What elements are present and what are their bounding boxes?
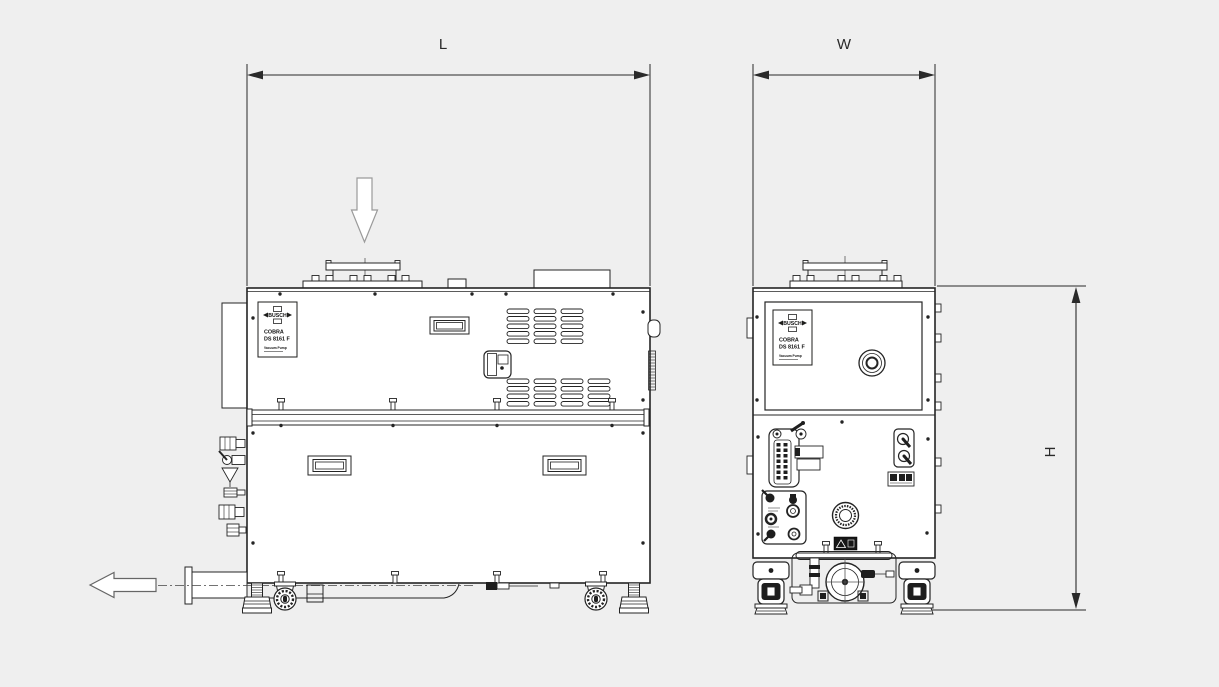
arrowhead-left-icon: [247, 71, 263, 80]
dimension-length: L: [247, 36, 650, 286]
flange-bolt: [402, 276, 409, 282]
caster-wheel: [585, 582, 607, 610]
length-label: L: [439, 36, 447, 53]
caster-wheel: [899, 562, 935, 614]
exhaust-pipe: [192, 572, 247, 598]
upper-handle: [430, 317, 469, 334]
side-view: [90, 178, 660, 613]
caster-wheel: [274, 582, 296, 610]
arrowhead-left-icon: [753, 71, 769, 80]
type-label-sticker: [888, 472, 914, 486]
arrowhead-right-icon: [634, 71, 650, 80]
drawing-canvas: BUSCH COBRA DS 8161 F Vacuum Pump L W H: [0, 0, 1219, 687]
left-side-cover: [222, 303, 247, 408]
nameplate-front: [773, 310, 812, 365]
lower-handle-left: [308, 456, 351, 475]
dimension-width: W: [753, 36, 935, 286]
leveling-foot: [620, 583, 649, 613]
flange-bolt: [326, 276, 333, 282]
lower-handle-right: [543, 456, 586, 475]
hinge: [747, 318, 753, 338]
top-small-box: [448, 279, 466, 288]
width-label: W: [837, 36, 852, 53]
arrowhead-right-icon: [919, 71, 935, 80]
exhaust-flow-arrow-icon: [90, 573, 156, 598]
flange-bolt: [388, 276, 395, 282]
flange-bolt: [350, 276, 357, 282]
warning-label: [834, 537, 857, 550]
center-port: [833, 503, 859, 529]
nameplate-side: [258, 302, 297, 357]
arrowhead-up-icon: [1072, 287, 1081, 303]
flange-bolt: [312, 276, 319, 282]
height-label: H: [1042, 447, 1059, 458]
hinge: [747, 456, 753, 474]
inlet-flow-arrow-icon: [352, 178, 378, 242]
arrowhead-down-icon: [1072, 593, 1081, 609]
door-round-latch: [859, 350, 885, 376]
flange-bolt: [364, 276, 371, 282]
drawing-page: BUSCH COBRA DS 8161 F Vacuum Pump L W H: [0, 0, 1219, 687]
exhaust-silencer-box: [534, 270, 610, 288]
front-view: [747, 256, 941, 614]
service-connections: [219, 437, 246, 536]
caster-wheel: [753, 562, 789, 614]
pipe-bracket: [307, 585, 323, 602]
